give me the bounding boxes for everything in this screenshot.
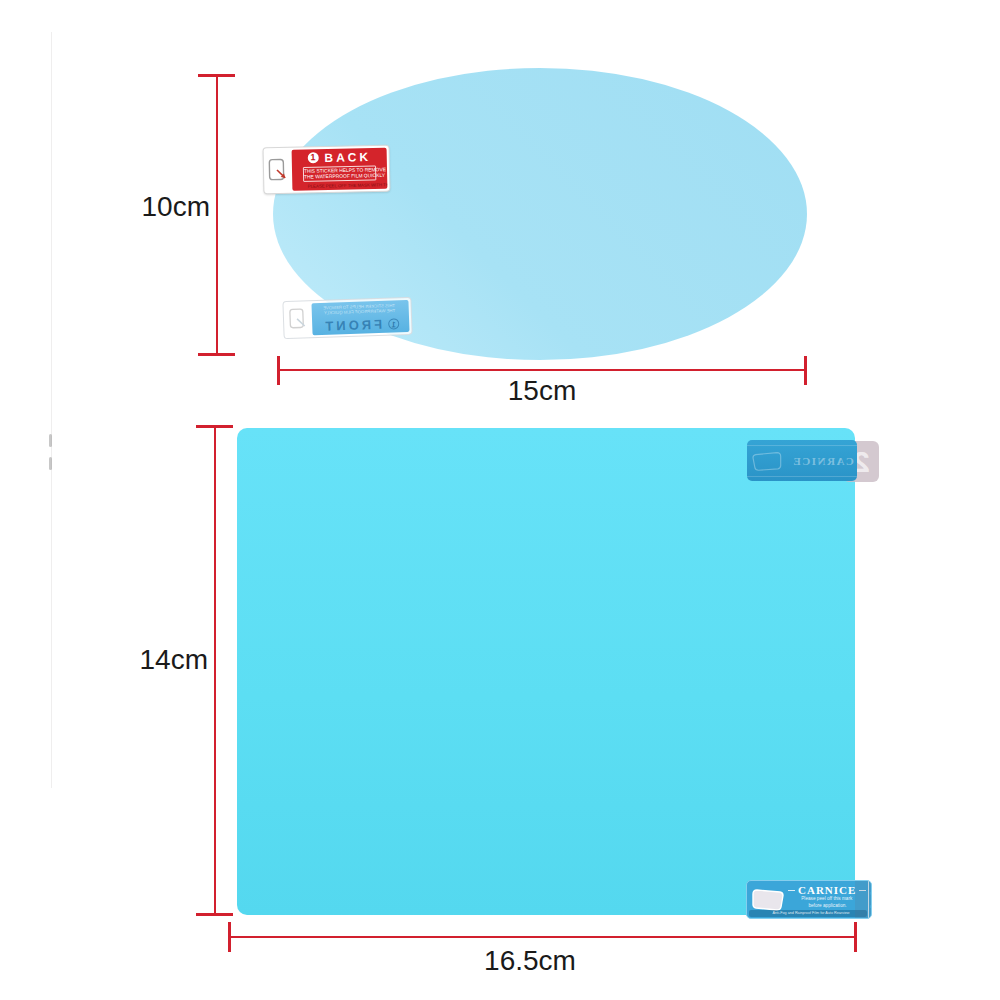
back-sticker-panel: 1 BACK THIS STICKER HELPS TO REMOVE THE …	[292, 148, 388, 191]
front-sticker: THIS STICKER HELPS TO REMOVE THE WATERPR…	[282, 297, 412, 339]
back-sticker-line2: THE WATERPROOF FILM QUICKLY	[304, 173, 375, 180]
oval-width-left-cap	[277, 356, 280, 385]
back-sticker-instructions: THIS STICKER HELPS TO REMOVE THE WATERPR…	[303, 166, 376, 182]
crease-mark	[49, 434, 52, 447]
rect-height-dimension-line	[214, 426, 216, 915]
front-sticker-number: 1	[388, 318, 399, 329]
rect-height-bottom-cap	[196, 913, 233, 916]
carnice-line1: Please peel off this mark	[802, 896, 853, 901]
front-sticker-title: FRONT	[322, 316, 382, 333]
back-sticker-footer: PLEASE PEEL OFF THE MASK WITH THIS STICK…	[308, 183, 372, 189]
oval-height-label: 10cm	[120, 192, 210, 223]
mirrored-carnice-label: CARNICE	[747, 440, 857, 481]
mirror-logo-icon	[750, 449, 784, 473]
product-dimension-diagram: 1 BACK THIS STICKER HELPS TO REMOVE THE …	[0, 0, 1000, 1000]
rect-width-dimension-line	[229, 936, 857, 938]
front-sticker-instructions: THIS STICKER HELPS TO REMOVE THE WATERPR…	[325, 304, 395, 317]
carnice-label: CARNICE Please peel off this mark before…	[746, 880, 872, 919]
oval-height-bottom-cap	[198, 353, 235, 356]
back-sticker-number: 1	[307, 152, 318, 163]
oval-height-dimension-line	[216, 75, 218, 356]
brand-flourish-left	[788, 890, 795, 891]
carnice-number: 1	[868, 881, 872, 918]
front-sticker-line2: THE WATERPROOF FILM QUICKLY	[325, 309, 395, 317]
peel-icon	[266, 150, 291, 191]
oval-width-dimension-line	[278, 369, 806, 371]
crease-mark	[49, 457, 52, 470]
brand-flourish-right	[859, 890, 866, 891]
rect-width-label: 16.5cm	[420, 946, 640, 977]
rect-mirror-film	[237, 428, 855, 915]
rect-height-top-cap	[196, 425, 233, 428]
back-sticker-title: BACK	[324, 150, 371, 165]
rect-height-label: 14cm	[118, 645, 208, 676]
oval-width-right-cap	[804, 356, 807, 385]
peel-icon	[285, 303, 310, 336]
carnice-footer-text: Anti-Fog and Rainproof Film for Auto Rea…	[773, 911, 850, 915]
background-crease-line	[51, 32, 52, 788]
mirror-icon	[750, 886, 786, 913]
oval-height-top-cap	[198, 74, 235, 77]
back-sticker: 1 BACK THIS STICKER HELPS TO REMOVE THE …	[263, 145, 391, 195]
rect-width-left-cap	[228, 922, 231, 952]
carnice-brand: CARNICE	[798, 885, 856, 896]
carnice-line2: before application.	[808, 903, 846, 908]
carnice-footer: Anti-Fog and Rainproof Film for Auto Rea…	[749, 910, 867, 917]
front-sticker-panel: THIS STICKER HELPS TO REMOVE THE WATERPR…	[311, 300, 409, 335]
oval-width-label: 15cm	[442, 376, 642, 407]
rect-width-right-cap	[854, 922, 857, 952]
mirrored-carnice-brand: CARNICE	[792, 455, 854, 467]
